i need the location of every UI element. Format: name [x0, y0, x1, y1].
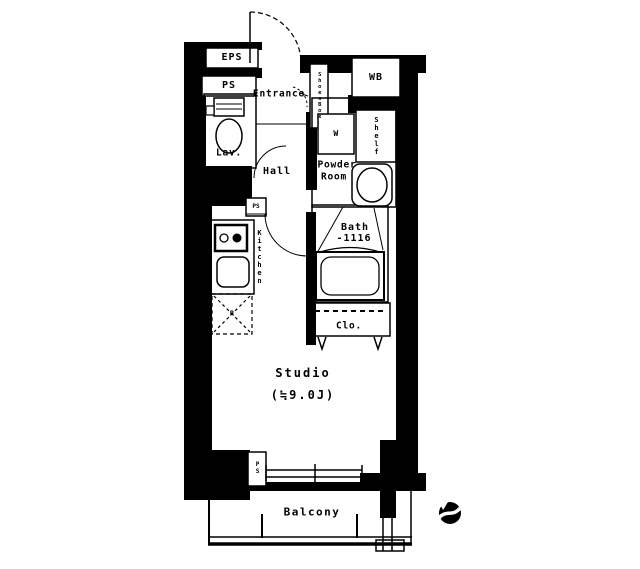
label-lav: Lav.	[216, 148, 242, 158]
closet-bracket-left	[318, 337, 326, 349]
label-balcony: Balcony	[284, 507, 341, 518]
powder-door-arc	[265, 214, 307, 256]
label-eps: EPS	[221, 53, 242, 63]
label-studio-line1: Studio	[275, 367, 330, 379]
bath-door-line-right	[374, 208, 383, 250]
bath-door-line-left	[317, 207, 343, 253]
studio-window	[266, 464, 362, 483]
kitchen-sink	[217, 257, 249, 287]
label-studio-line2: (≒9.0J)	[271, 389, 336, 401]
label-fridge: R	[230, 311, 234, 318]
label-kitchen: Kitchen	[256, 229, 263, 285]
label-ps-mid: PS	[252, 204, 259, 210]
label-bath-line2: -1116	[336, 234, 371, 244]
basin-bowl	[357, 168, 387, 202]
label-ps-bottom: PS	[254, 461, 260, 475]
label-shelf: Shelf	[373, 116, 380, 156]
toilet-tank	[214, 98, 244, 116]
bathtub-inner	[321, 257, 379, 295]
closet-bracket-right	[374, 337, 382, 349]
label-entrance: Entrance	[253, 89, 305, 99]
label-shoes-box: ShoesBox	[316, 72, 322, 120]
label-washer: W	[333, 130, 338, 138]
label-ps-top: PS	[222, 81, 236, 91]
north-arrow-icon	[439, 502, 461, 524]
label-powder-line1: Powder	[317, 160, 356, 170]
toilet-lever	[206, 106, 214, 115]
floorplan-page: EPS PS Lav. Entrance ShoesBox WB W Shelf…	[0, 0, 640, 569]
burner-right	[233, 234, 241, 242]
label-bath-line1: Bath	[341, 223, 369, 233]
label-closet: Clo.	[336, 321, 362, 331]
label-hall: Hall	[263, 167, 291, 177]
label-wb: WB	[369, 73, 383, 83]
label-powder-line2: Room	[321, 172, 347, 182]
